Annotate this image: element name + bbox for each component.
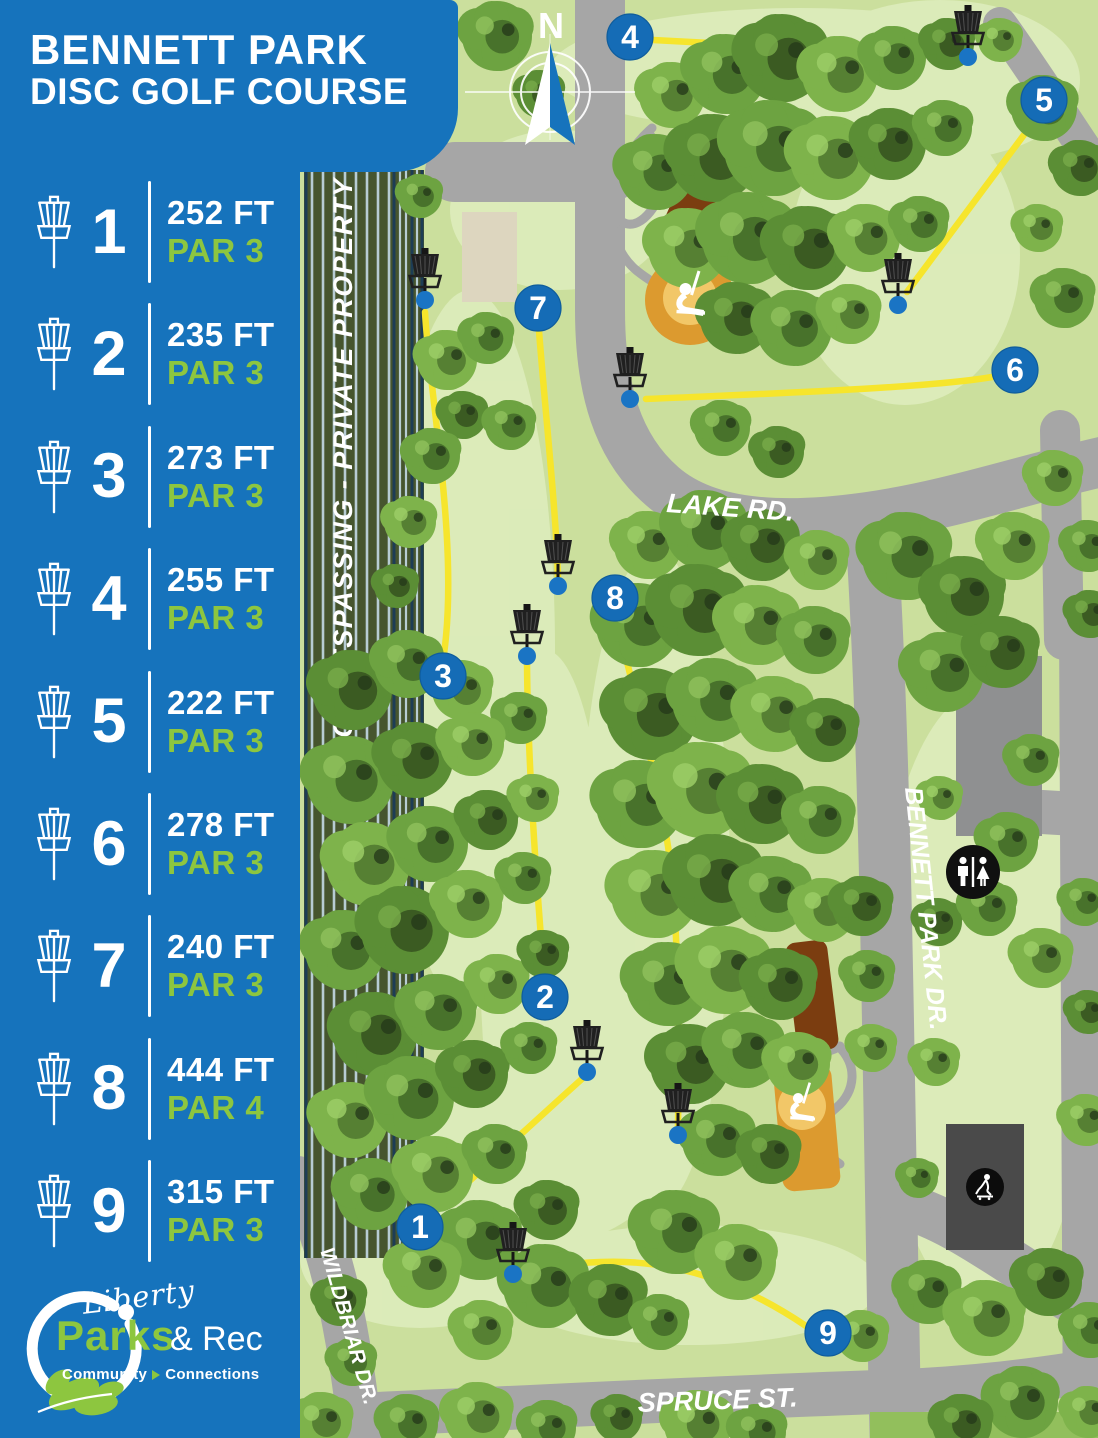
divider	[148, 793, 151, 895]
divider	[148, 915, 151, 1017]
hole-row-2: 2235 FTPAR 3	[0, 293, 300, 415]
hole-distance: 252 FT	[167, 194, 275, 232]
hole-par: PAR 3	[167, 966, 275, 1004]
divider	[148, 303, 151, 405]
hole-list: 1252 FTPAR 32235 FTPAR 33273 FTPAR 34255…	[0, 0, 300, 1438]
tagline-connections: Connections	[165, 1366, 259, 1383]
hole-number: 2	[76, 323, 142, 386]
hole-number: 8	[76, 1057, 142, 1120]
parks-and-rec-logo: Liberty Parks & Rec Community Connection…	[18, 1278, 286, 1430]
hole-distance: 278 FT	[167, 806, 275, 844]
hole-par: PAR 3	[167, 477, 275, 515]
hole-number: 3	[76, 445, 142, 508]
hole-number: 1	[76, 201, 142, 264]
hole-distance: 315 FT	[167, 1173, 275, 1211]
hole-row-4: 4255 FTPAR 3	[0, 538, 300, 660]
bennett-park-course-poster: NO TRESPASSING - PRIVATE PROPERTY	[0, 0, 1098, 1438]
sand-court	[462, 212, 517, 302]
hole-row-8: 8444 FTPAR 4	[0, 1028, 300, 1150]
restroom-icon	[946, 845, 1000, 899]
hole-distance: 235 FT	[167, 316, 275, 354]
svg-text:9: 9	[819, 1315, 837, 1351]
divider	[148, 548, 151, 650]
divider	[148, 181, 151, 283]
hole-row-3: 3273 FTPAR 3	[0, 416, 300, 538]
divider	[148, 426, 151, 528]
svg-text:7: 7	[529, 290, 547, 326]
hole-7-tee-marker: 7	[515, 285, 561, 331]
svg-text:4: 4	[621, 19, 639, 55]
svg-text:8: 8	[606, 580, 624, 616]
svg-text:2: 2	[536, 979, 554, 1015]
svg-text:N: N	[538, 5, 564, 46]
hole-number: 7	[76, 935, 142, 998]
disc-basket-icon	[32, 191, 76, 273]
hole-1-tee-marker: 1	[397, 1204, 443, 1250]
disc-basket-icon	[32, 803, 76, 885]
disc-basket-icon	[32, 925, 76, 1007]
hole-3-tee-marker: 3	[420, 653, 466, 699]
hole-row-6: 6278 FTPAR 3	[0, 783, 300, 905]
disc-basket-icon	[32, 436, 76, 518]
hole-4-tee-marker: 4	[607, 14, 653, 60]
disc-basket-icon	[32, 558, 76, 640]
hole-8-tee-marker: 8	[592, 575, 638, 621]
logo-tagline: Community Connections	[62, 1366, 259, 1383]
hole-distance: 222 FT	[167, 684, 275, 722]
logo-parks-text: Parks	[56, 1312, 175, 1360]
divider	[148, 1160, 151, 1262]
hole-9-tee-marker: 9	[805, 1310, 851, 1356]
svg-text:6: 6	[1006, 352, 1024, 388]
hole-par: PAR 3	[167, 354, 275, 392]
divider	[148, 671, 151, 773]
svg-text:5: 5	[1035, 82, 1053, 118]
hole-par: PAR 3	[167, 844, 275, 882]
disc-basket-icon	[32, 1170, 76, 1252]
hole-distance: 255 FT	[167, 561, 275, 599]
skater-icon	[966, 1168, 1004, 1206]
disc-basket-icon	[32, 313, 76, 395]
hole-number: 5	[76, 690, 142, 753]
tagline-community: Community	[62, 1366, 147, 1383]
hole-distance: 240 FT	[167, 928, 275, 966]
disc-basket-icon	[32, 681, 76, 763]
hole-row-5: 5222 FTPAR 3	[0, 661, 300, 783]
arrow-icon	[152, 1370, 160, 1380]
hole-distance: 273 FT	[167, 439, 275, 477]
logo-rec-text: & Rec	[170, 1320, 263, 1359]
hole-number: 9	[76, 1180, 142, 1243]
hole-row-7: 7240 FTPAR 3	[0, 905, 300, 1027]
hole-5-tee-marker: 5	[1021, 77, 1067, 123]
hole-par: PAR 3	[167, 232, 275, 270]
svg-text:3: 3	[434, 658, 452, 694]
hole-par: PAR 4	[167, 1089, 275, 1127]
hole-number: 4	[76, 568, 142, 631]
hole-par: PAR 3	[167, 722, 275, 760]
hole-par: PAR 3	[167, 1211, 275, 1249]
disc-basket-icon	[32, 1048, 76, 1130]
hole-2-tee-marker: 2	[522, 974, 568, 1020]
divider	[148, 1038, 151, 1140]
hole-number: 6	[76, 813, 142, 876]
hole-6-tee-marker: 6	[992, 347, 1038, 393]
hole-par: PAR 3	[167, 599, 275, 637]
svg-text:1: 1	[411, 1209, 429, 1245]
hole-row-9: 9315 FTPAR 3	[0, 1150, 300, 1272]
hole-distance: 444 FT	[167, 1051, 275, 1089]
hole-row-1: 1252 FTPAR 3	[0, 171, 300, 293]
road-label-spruce-st: SPRUCE ST.	[637, 1382, 798, 1418]
